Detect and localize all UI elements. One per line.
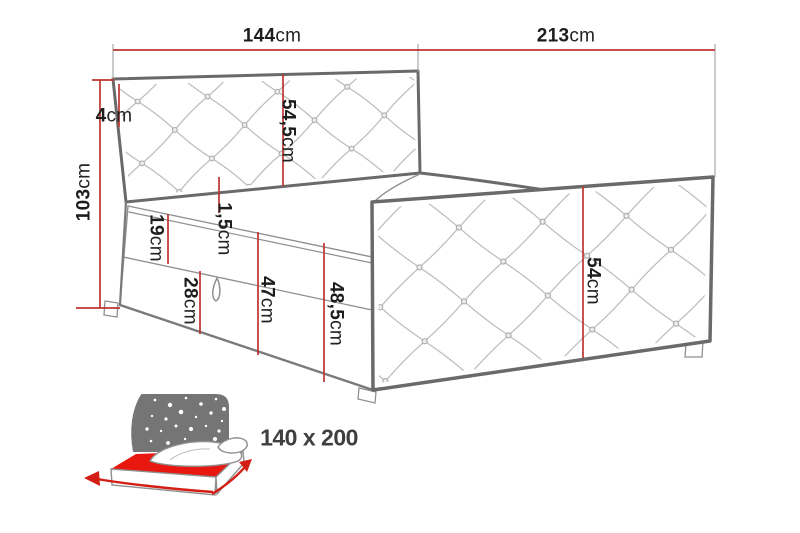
dim-label-headboard-inner: 54,5cm [279, 99, 298, 163]
bed-size-icon [84, 392, 252, 495]
mattress-silhouette [420, 173, 545, 190]
bed-drawing [0, 0, 800, 533]
dim-label-width-top: 144cm [243, 27, 302, 46]
dim-label-base-front: 47cm [258, 276, 277, 324]
dim-label-height-total: 103cm [75, 163, 94, 222]
side-rail-panel [372, 177, 713, 390]
dim-label-drawer: 28cm [181, 277, 200, 325]
dim-label-headboard-frame: 4cm [96, 107, 133, 126]
mattress-size-label: 140 x 200 [260, 425, 358, 452]
dim-label-base-total: 48,5cm [327, 282, 346, 346]
bed-dimension-diagram: 144cm 213cm 103cm 4cm 54,5cm 1,5cm 19cm … [0, 0, 800, 533]
dim-label-length-side: 213cm [537, 27, 596, 46]
dim-label-side-panel: 54cm [584, 257, 603, 305]
dim-label-platform-lip: 1,5cm [215, 202, 234, 255]
bed-sketch [104, 71, 713, 403]
dim-label-mattress: 19cm [147, 214, 166, 262]
